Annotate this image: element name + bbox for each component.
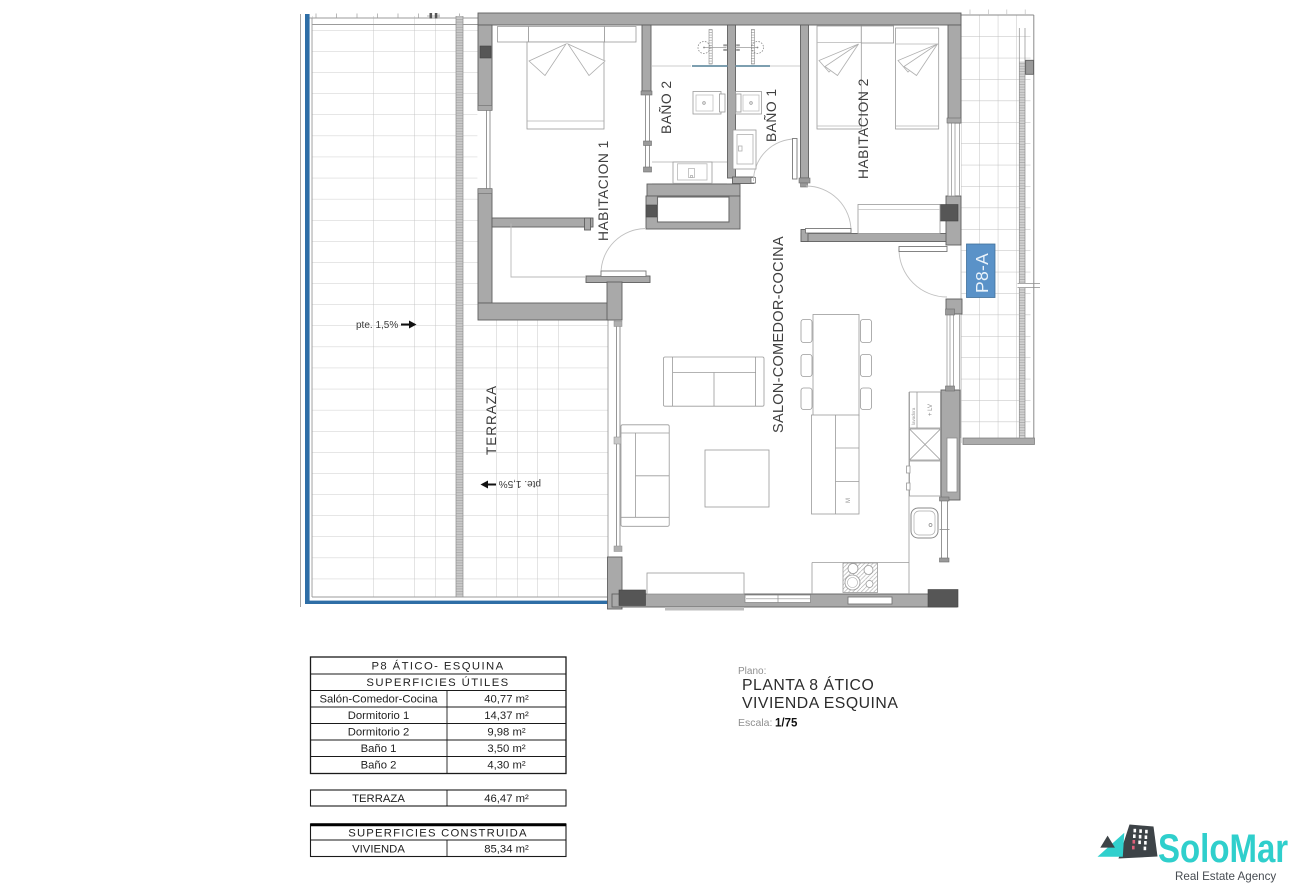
svg-text:85,34 m²: 85,34 m² [484,844,529,856]
svg-text:P8 ÁTICO- ESQUINA: P8 ÁTICO- ESQUINA [371,660,504,673]
svg-text:VIVIENDA ESQUINA: VIVIENDA ESQUINA [742,695,898,712]
svg-text:Plano:: Plano: [738,666,766,677]
svg-text:pte. 1,5%: pte. 1,5% [356,320,398,331]
svg-text:Dormitorio 1: Dormitorio 1 [348,710,410,722]
svg-text:TERRAZA: TERRAZA [352,793,405,805]
svg-text:1/75: 1/75 [775,718,798,730]
svg-text:SoloMar: SoloMar [1158,826,1288,871]
svg-text:BAÑO 2: BAÑO 2 [658,80,674,134]
svg-text:Baño 2: Baño 2 [361,760,397,772]
svg-text:lavadora: lavadora [911,407,916,425]
svg-text:SUPERFICIES ÚTILES: SUPERFICIES ÚTILES [366,676,509,689]
svg-text:SALON-COMEDOR-COCINA: SALON-COMEDOR-COCINA [771,236,787,433]
svg-text:HABITACION 1: HABITACION 1 [596,140,611,241]
svg-text:+ LV: + LV [928,404,934,416]
svg-text:VIVIENDA: VIVIENDA [352,844,405,856]
svg-text:40,77 m²: 40,77 m² [484,694,529,706]
svg-text:P8-A: P8-A [972,253,992,293]
svg-text:Salón-Comedor-Cocina: Salón-Comedor-Cocina [319,694,438,706]
svg-text:pte. 1,5%: pte. 1,5% [499,478,541,489]
svg-text:14,37 m²: 14,37 m² [484,710,529,722]
svg-text:9,98 m²: 9,98 m² [487,727,526,739]
svg-text:Real Estate Agency: Real Estate Agency [1175,870,1276,883]
svg-text:3,50 m²: 3,50 m² [487,743,526,755]
svg-text:BAÑO 1: BAÑO 1 [763,88,779,142]
svg-text:4,30 m²: 4,30 m² [487,760,526,772]
svg-text:Escala:: Escala: [738,717,772,729]
svg-text:M: M [846,498,852,503]
svg-text:TERRAZA: TERRAZA [484,385,499,455]
svg-text:PLANTA 8 ÁTICO: PLANTA 8 ÁTICO [742,675,874,694]
svg-text:HABITACION 2: HABITACION 2 [856,78,871,179]
svg-text:Baño 1: Baño 1 [361,743,397,755]
svg-text:46,47 m²: 46,47 m² [484,793,529,805]
svg-text:Dormitorio 2: Dormitorio 2 [348,727,410,739]
svg-text:SUPERFICIES CONSTRUIDA: SUPERFICIES CONSTRUIDA [348,828,528,840]
